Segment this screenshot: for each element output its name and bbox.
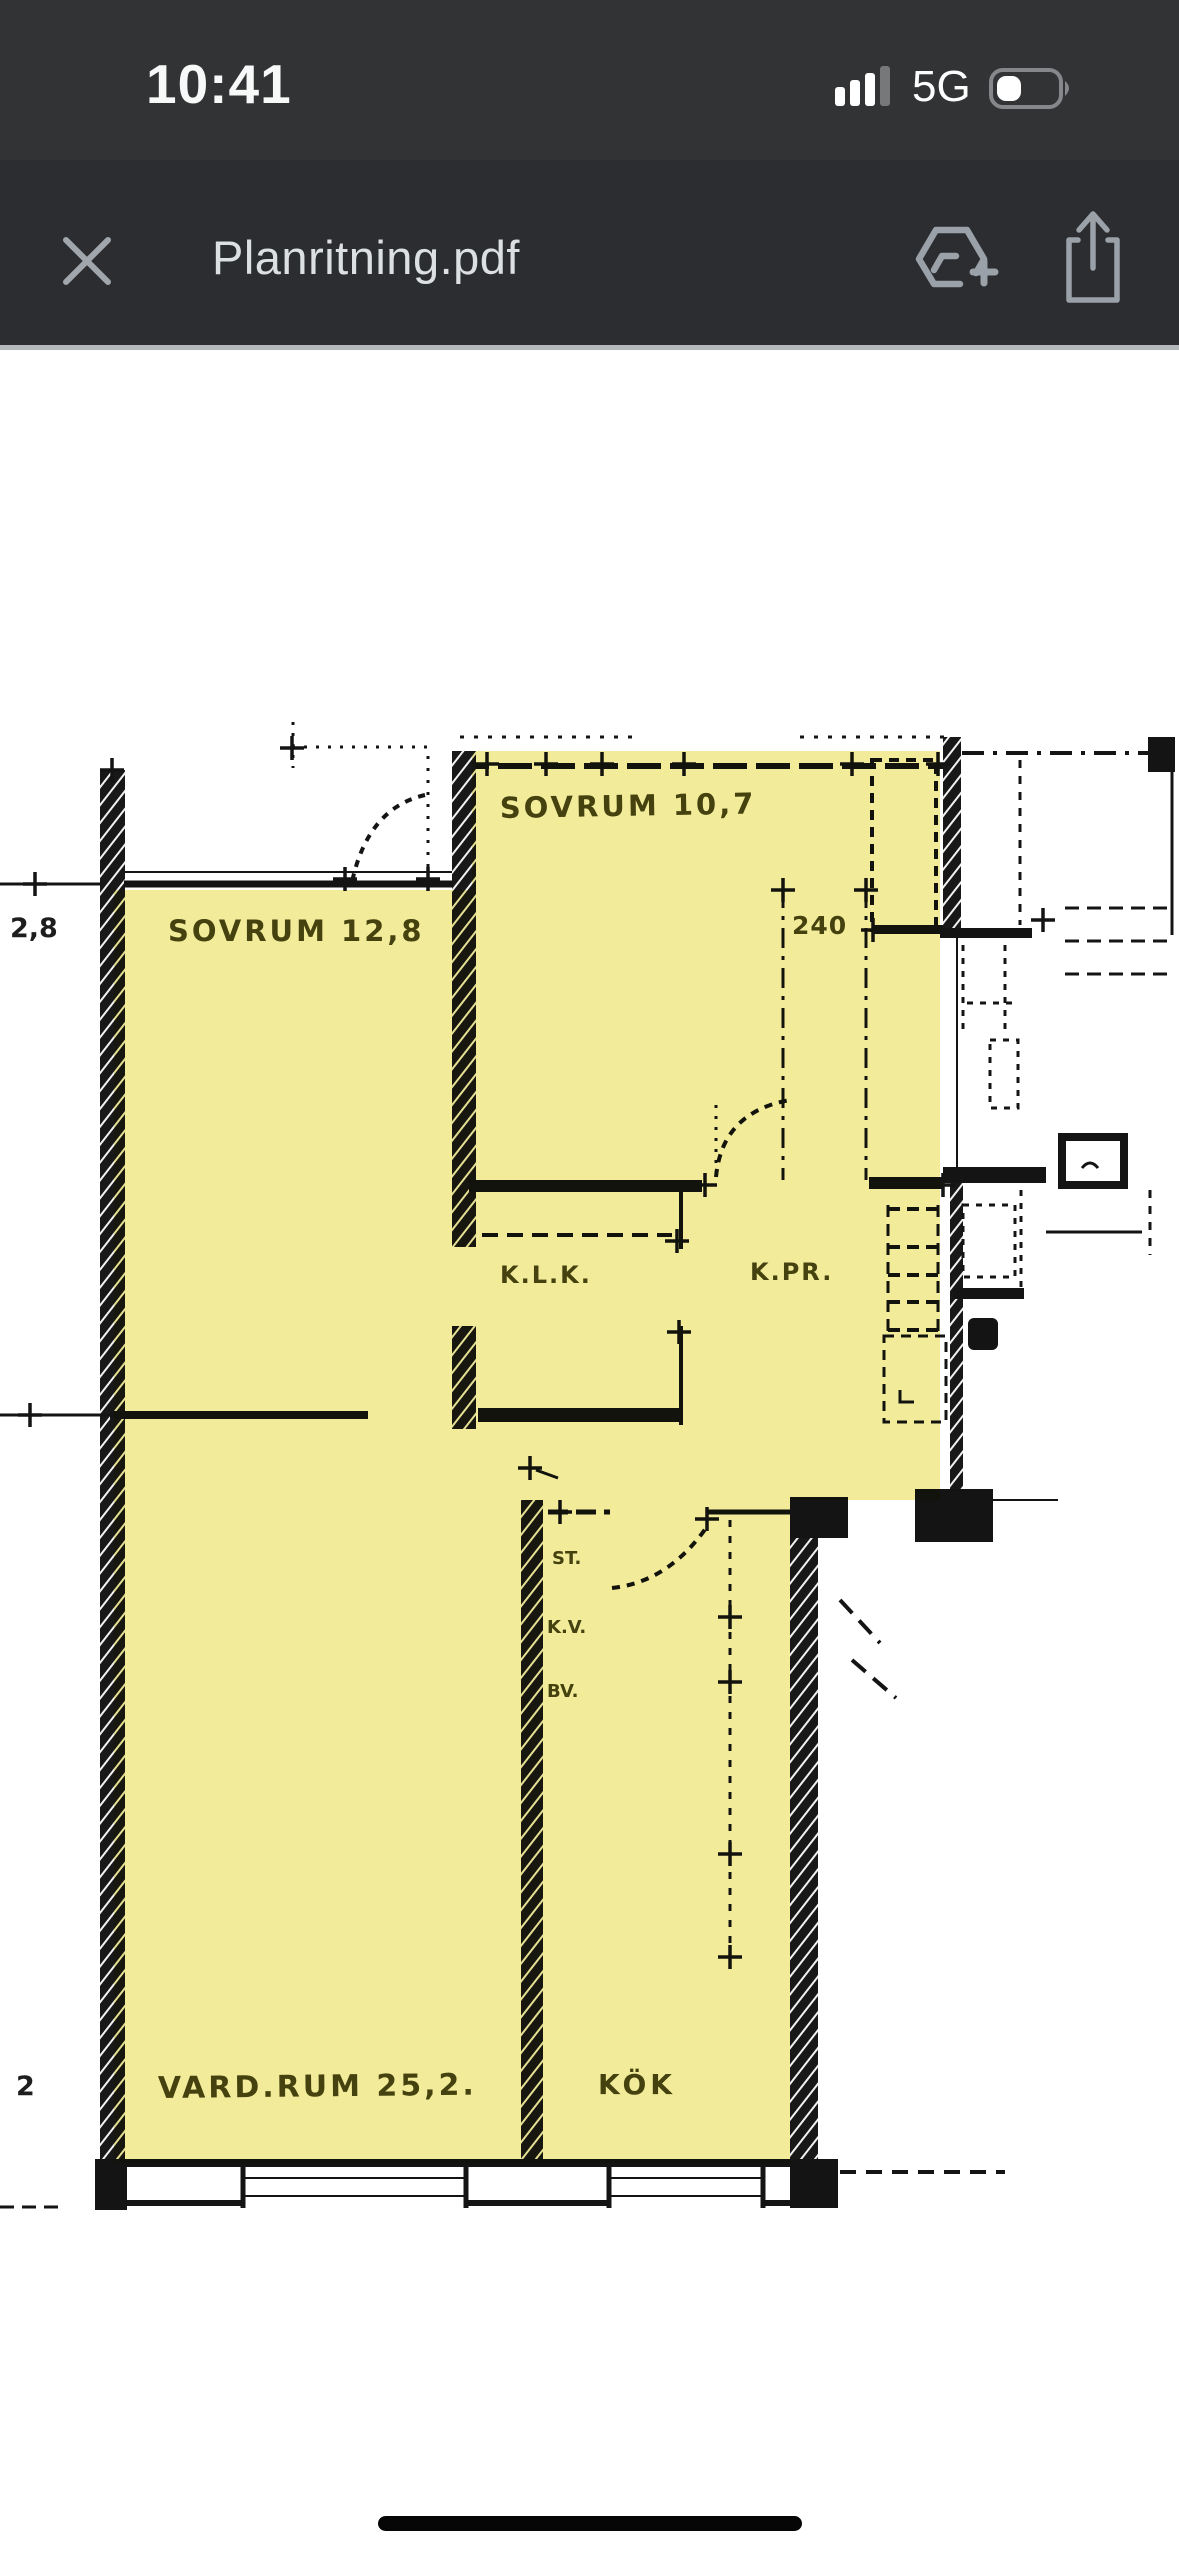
document-title: Planritning.pdf — [212, 230, 520, 285]
dimension-label-2-8: 2,8 — [10, 913, 58, 944]
battery-icon — [991, 70, 1069, 107]
pdf-page-floor-plan[interactable]: SOVRUM 10,7 SOVRUM 12,8 240 K.L.K. K.PR.… — [0, 0, 1179, 2556]
close-icon — [66, 240, 108, 282]
status-bar: 10:41 5G — [0, 0, 1179, 160]
toolbar-divider — [0, 345, 1179, 350]
room-label-vardagsrum: VARD.RUM 25,2. — [158, 2068, 477, 2106]
dimension-label-240: 240 — [792, 911, 847, 940]
room-label-kpr: K.PR. — [750, 1258, 833, 1286]
floor-plan-drawing: SOVRUM 10,7 SOVRUM 12,8 240 K.L.K. K.PR.… — [0, 0, 1179, 2556]
phone-screen: SOVRUM 10,7 SOVRUM 12,8 240 K.L.K. K.PR.… — [0, 0, 1179, 2556]
room-label-kok: KÖK — [598, 2067, 676, 2101]
status-time: 10:41 — [146, 52, 292, 116]
close-button[interactable] — [30, 160, 150, 345]
add-to-drive-button[interactable] — [890, 160, 1010, 345]
share-button[interactable] — [1040, 160, 1160, 345]
room-label-klk: K.L.K. — [500, 1261, 592, 1289]
dimension-label-2: 2 — [16, 2071, 35, 2102]
network-type-label: 5G — [912, 62, 971, 112]
room-label-kv: K.V. — [547, 1617, 586, 1638]
add-to-drive-icon — [919, 230, 995, 284]
pdf-viewer-toolbar: Planritning.pdf — [0, 160, 1179, 345]
room-label-sovrum-10-7: SOVRUM 10,7 — [500, 787, 757, 825]
cellular-signal-icon — [835, 66, 890, 106]
ios-share-icon — [1069, 214, 1117, 300]
room-label-st: ST. — [552, 1548, 581, 1569]
room-label-bv: BV. — [547, 1681, 578, 1702]
home-indicator[interactable] — [378, 2516, 802, 2531]
room-label-sovrum-12-8: SOVRUM 12,8 — [168, 914, 425, 948]
